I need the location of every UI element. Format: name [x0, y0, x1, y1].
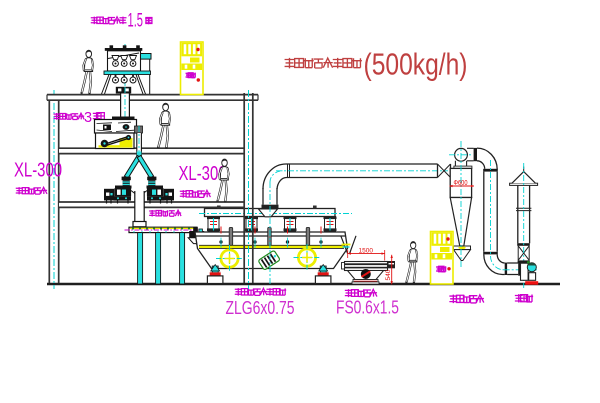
- svg-text:3: 3: [84, 110, 92, 126]
- svg-text:1500: 1500: [359, 248, 374, 255]
- svg-text:ZLG6x0.75: ZLG6x0.75: [226, 297, 295, 318]
- svg-text:540: 540: [385, 269, 392, 280]
- svg-text:(500kg/h): (500kg/h): [364, 46, 468, 81]
- svg-text:Φ600: Φ600: [454, 180, 468, 187]
- svg-text:1.5: 1.5: [128, 10, 144, 32]
- svg-text:FS0.6x1.5: FS0.6x1.5: [336, 297, 399, 318]
- svg-text:XL-300: XL-300: [14, 160, 62, 182]
